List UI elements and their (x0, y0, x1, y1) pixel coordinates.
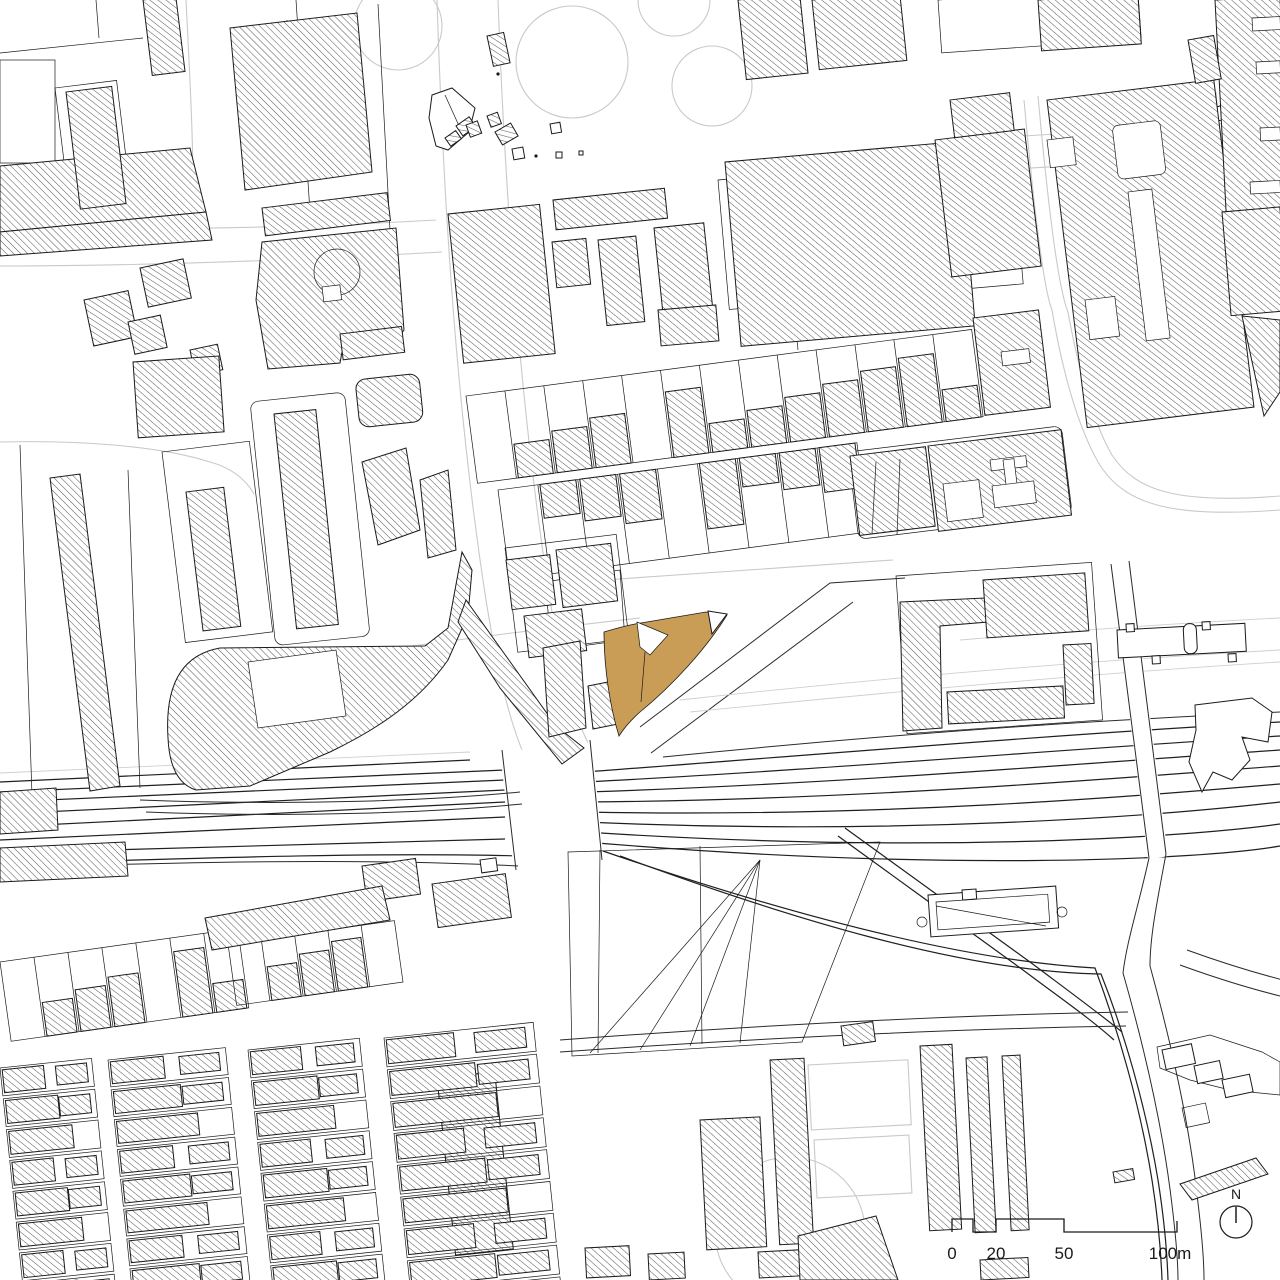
site-parcel (604, 612, 727, 736)
scale-label-50: 50 (1055, 1244, 1074, 1263)
layer-site_highlight (604, 611, 727, 736)
map-layers (0, 0, 1280, 1280)
site-plan-map: 0 20 50 100m N (0, 0, 1280, 1280)
scale-label-100m: 100m (1149, 1244, 1192, 1263)
scale-label-0: 0 (947, 1244, 956, 1263)
north-label: N (1231, 1186, 1241, 1202)
north-arrow: N (1220, 1186, 1252, 1238)
site-plan-canvas: 0 20 50 100m N (0, 0, 1280, 1280)
scale-label-20: 20 (987, 1244, 1006, 1263)
